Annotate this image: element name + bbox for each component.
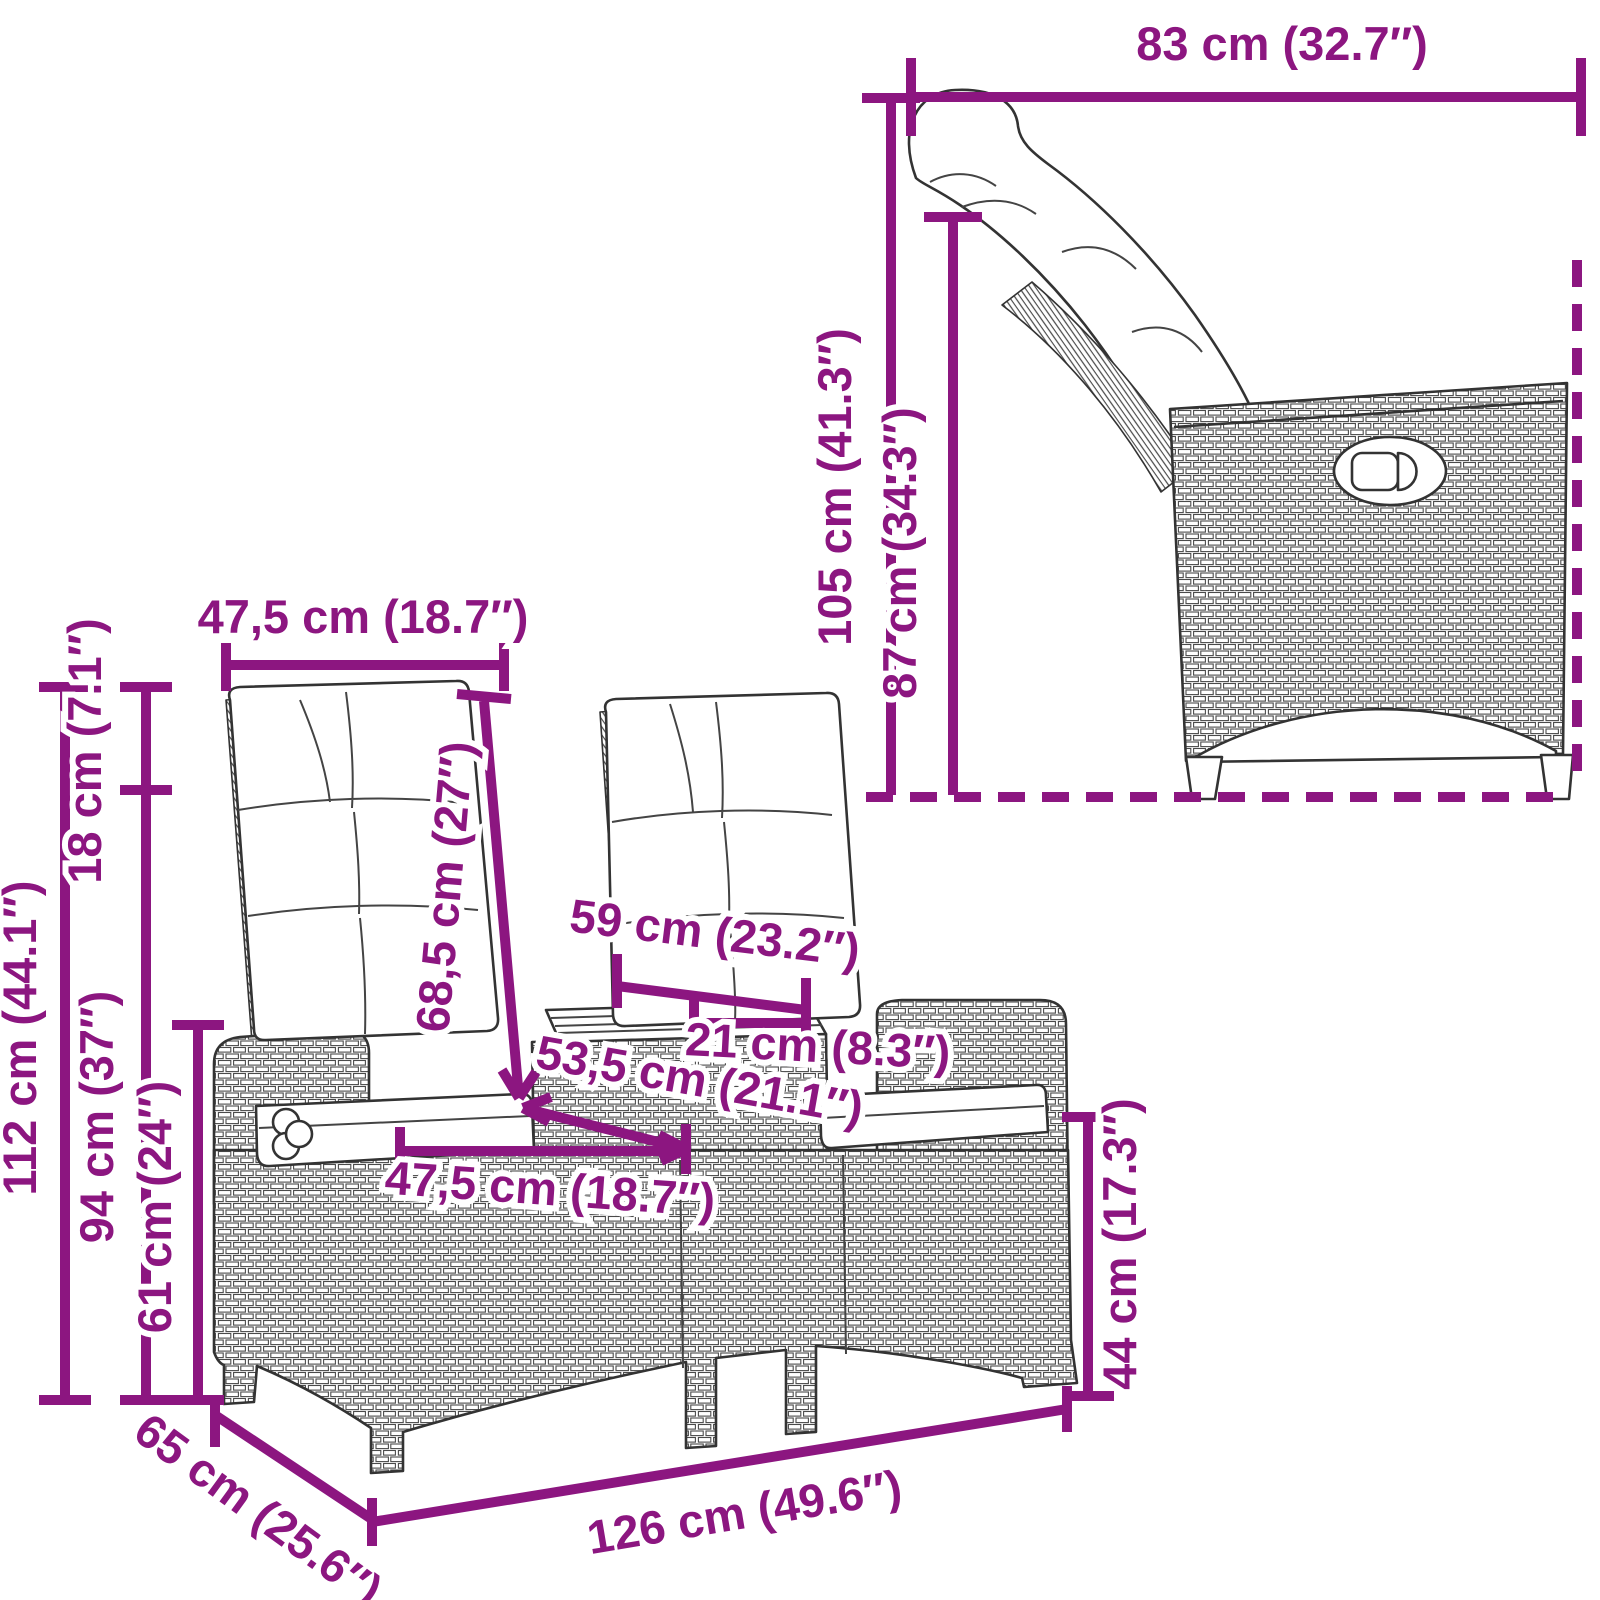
dim-line-side-backrest-height [924,217,982,795]
dim-label-headrest-height: 18 cm (7.1″) [58,618,111,883]
dim-label-backrest-height: 94 cm (37″) [70,991,123,1243]
recline-knob-icon [1334,437,1446,505]
dimension-diagram: 83 cm (32.7″) 105 cm (41.3″) 87 cm (34.3… [0,0,1600,1600]
dim-label-armrest-height: 61 cm (24″) [128,1081,181,1333]
dim-label-side-depth: 83 cm (32.7″) [1136,17,1428,70]
dim-label-side-total-height: 105 cm (41.3″) [808,328,861,646]
side-view-drawing [909,90,1573,799]
right-backrest-cushion [605,693,860,1026]
dim-label-total-height: 112 cm (44.1″) [0,880,46,1195]
dim-label-backrest-width: 47,5 cm (18.7″) [198,590,529,643]
diagram-svg: 83 cm (32.7″) 105 cm (41.3″) 87 cm (34.3… [0,0,1600,1600]
dim-label-side-backrest-height: 87 cm (34.3″) [873,407,926,699]
dim-label-seat-height: 44 cm (17.3″) [1093,1098,1146,1390]
